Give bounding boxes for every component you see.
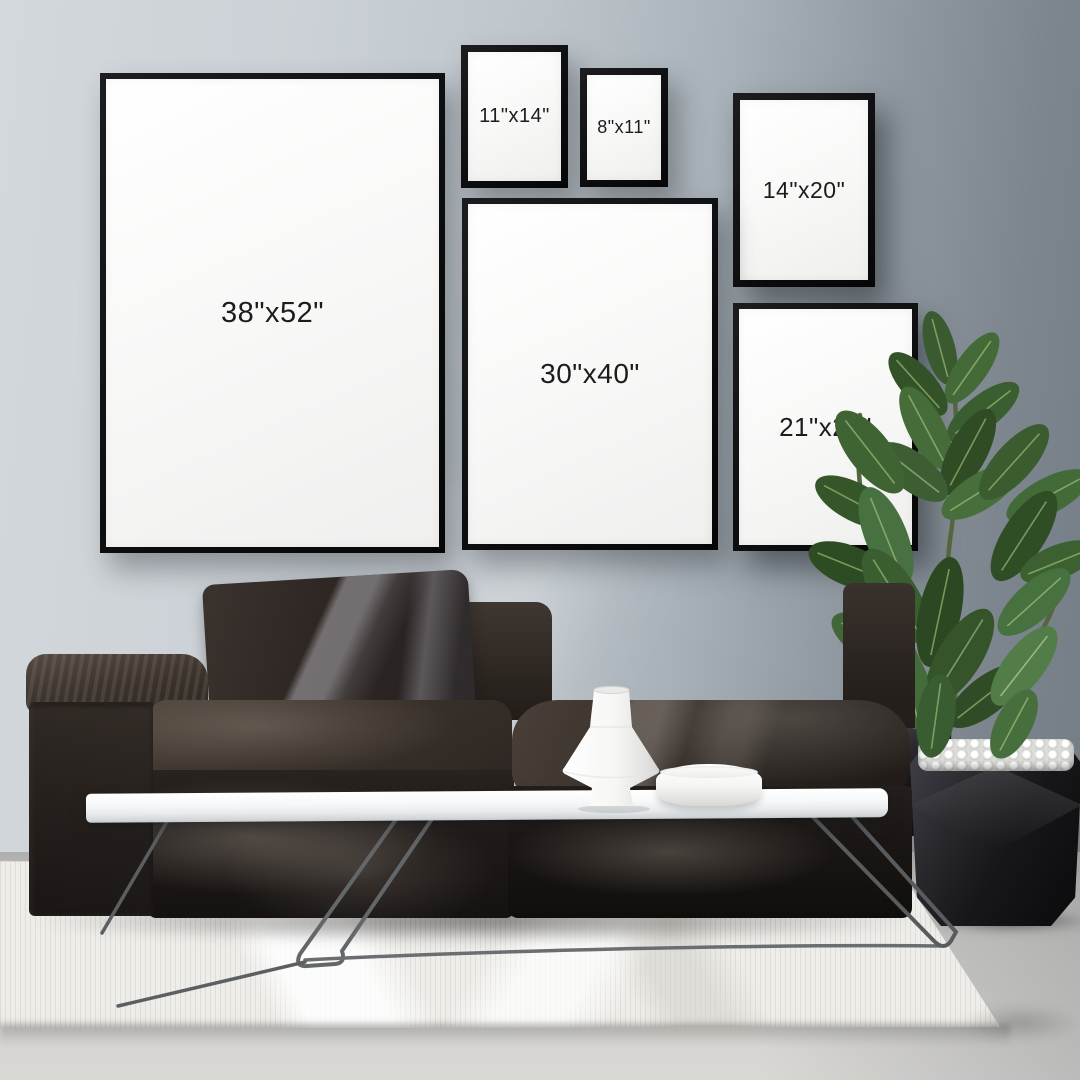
rug-edge-shadow [0,1024,1010,1046]
frame-8x11: 8"x11" [580,68,668,187]
vase [556,682,666,814]
rug-corner-shadow [955,1002,1080,1044]
size-label-11x14: 11"x14" [479,105,550,128]
frame-14x20: 14"x20" [733,93,875,287]
bowl-opening [660,766,758,778]
frame-38x52: 38"x52" [100,73,445,553]
bowl [656,764,762,806]
poster-14x20: 14"x20" [740,100,868,280]
planter-front [910,748,1080,926]
size-label-14x20: 14"x20" [763,177,846,204]
planter-facet-highlight [910,748,1080,926]
poster-30x40: 30"x40" [468,204,712,544]
size-label-8x11: 8"x11" [597,117,650,138]
size-label-30x40: 30"x40" [540,358,640,390]
poster-11x14: 11"x14" [468,52,561,181]
frame-11x14: 11"x14" [461,45,568,188]
frame-30x40: 30"x40" [462,198,718,550]
poster-8x11: 8"x11" [587,75,661,180]
poster-38x52: 38"x52" [106,79,439,547]
coffee-table-top [86,788,888,823]
size-label-38x52: 38"x52" [221,297,324,330]
living-room-scene: 38"x52" 11"x14" 8"x11" 14"x20" 30"x40" 2… [0,0,1080,1080]
